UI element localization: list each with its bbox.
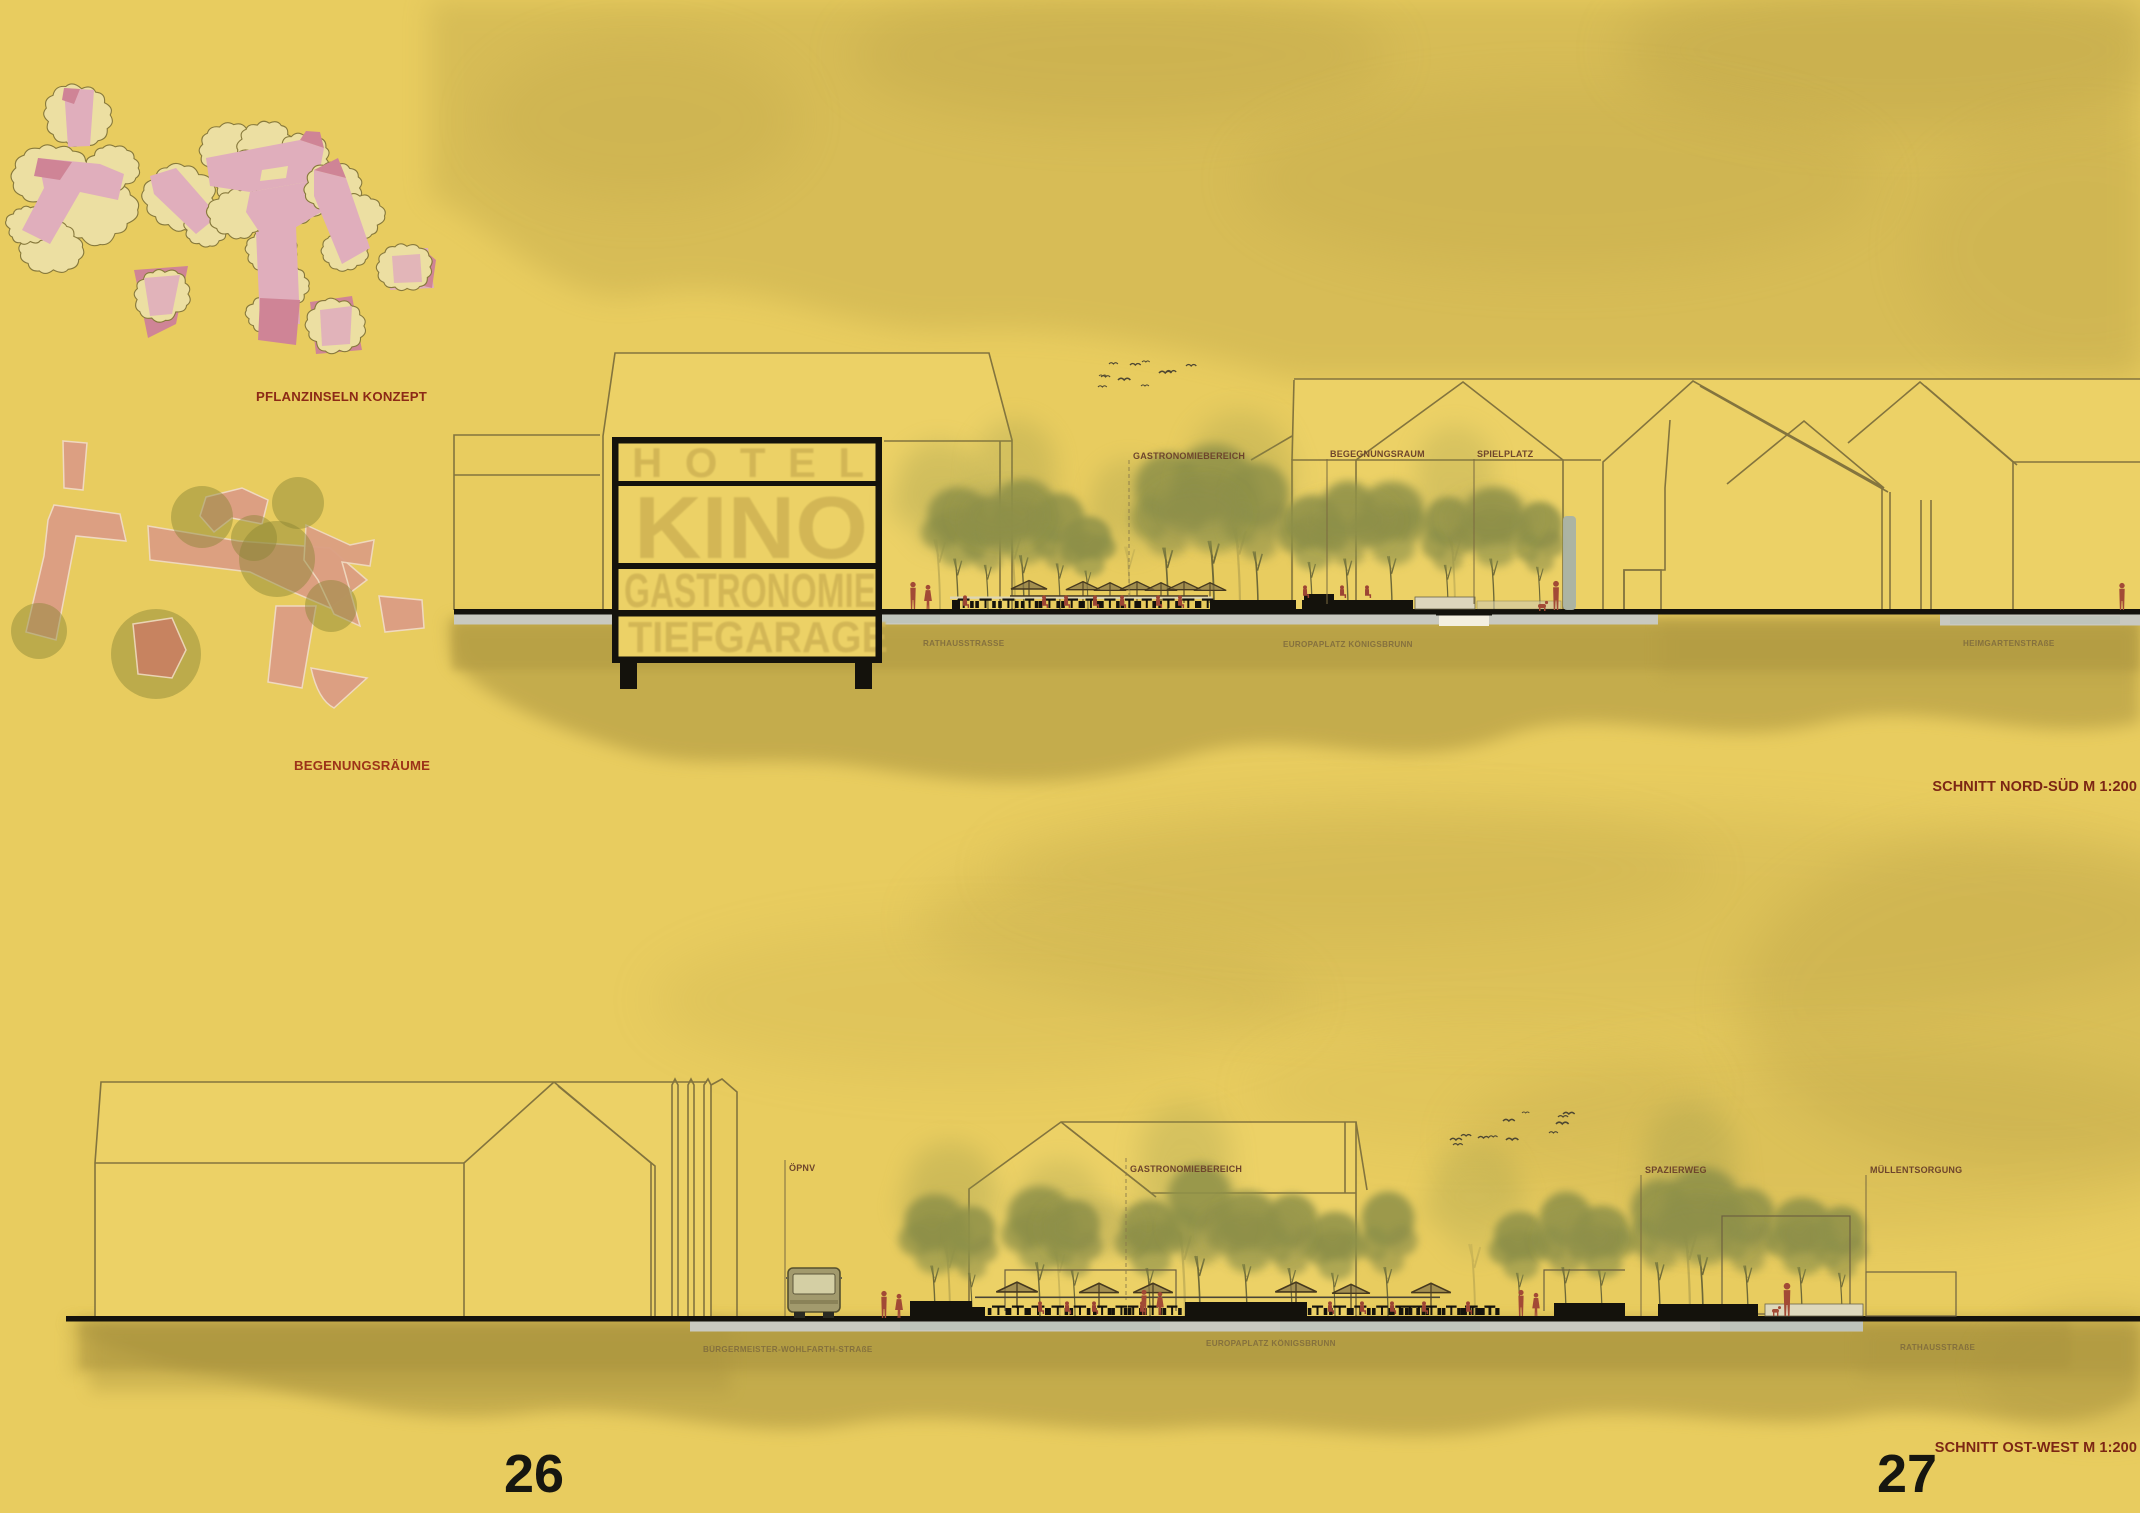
svg-text:27: 27 xyxy=(1877,1444,1937,1504)
svg-text:PFLANZINSELN KONZEPT: PFLANZINSELN KONZEPT xyxy=(256,389,427,404)
svg-text:BÜRGERMEISTER-WOHLFARTH-STRAßE: BÜRGERMEISTER-WOHLFARTH-STRAßE xyxy=(703,1345,873,1354)
svg-text:ÖPNV: ÖPNV xyxy=(789,1163,815,1173)
svg-text:SCHNITT NORD-SÜD M 1:200: SCHNITT NORD-SÜD M 1:200 xyxy=(1932,778,2137,795)
svg-text:RATHAUSSTRAßE: RATHAUSSTRAßE xyxy=(1900,1343,1976,1352)
svg-text:EUROPAPLATZ KÖNIGSBRUNN: EUROPAPLATZ KÖNIGSBRUNN xyxy=(1206,1339,1336,1348)
svg-text:MÜLLENTSORGUNG: MÜLLENTSORGUNG xyxy=(1870,1165,1962,1175)
svg-text:GASTRONOMIEBEREICH: GASTRONOMIEBEREICH xyxy=(1133,451,1245,461)
svg-text:GASTRONOMIEBEREICH: GASTRONOMIEBEREICH xyxy=(1130,1164,1242,1174)
svg-text:SPIELPLATZ: SPIELPLATZ xyxy=(1477,449,1534,459)
svg-text:KINO: KINO xyxy=(634,478,868,577)
svg-text:BEGENUNGSRÄUME: BEGENUNGSRÄUME xyxy=(294,758,430,773)
svg-text:EUROPAPLATZ KÖNIGSBRUNN: EUROPAPLATZ KÖNIGSBRUNN xyxy=(1283,640,1413,649)
svg-text:RATHAUSSTRASSE: RATHAUSSTRASSE xyxy=(923,639,1005,648)
svg-text:HEIMGARTENSTRAßE: HEIMGARTENSTRAßE xyxy=(1963,639,2055,648)
svg-text:SCHNITT OST-WEST M 1:200: SCHNITT OST-WEST M 1:200 xyxy=(1935,1440,2137,1456)
svg-text:BEGEGNUNGSRAUM: BEGEGNUNGSRAUM xyxy=(1330,449,1425,459)
svg-text:26: 26 xyxy=(504,1444,564,1504)
svg-text:SPAZIERWEG: SPAZIERWEG xyxy=(1645,1165,1707,1175)
svg-text:TIEFGARAGE: TIEFGARAGE xyxy=(628,613,888,662)
